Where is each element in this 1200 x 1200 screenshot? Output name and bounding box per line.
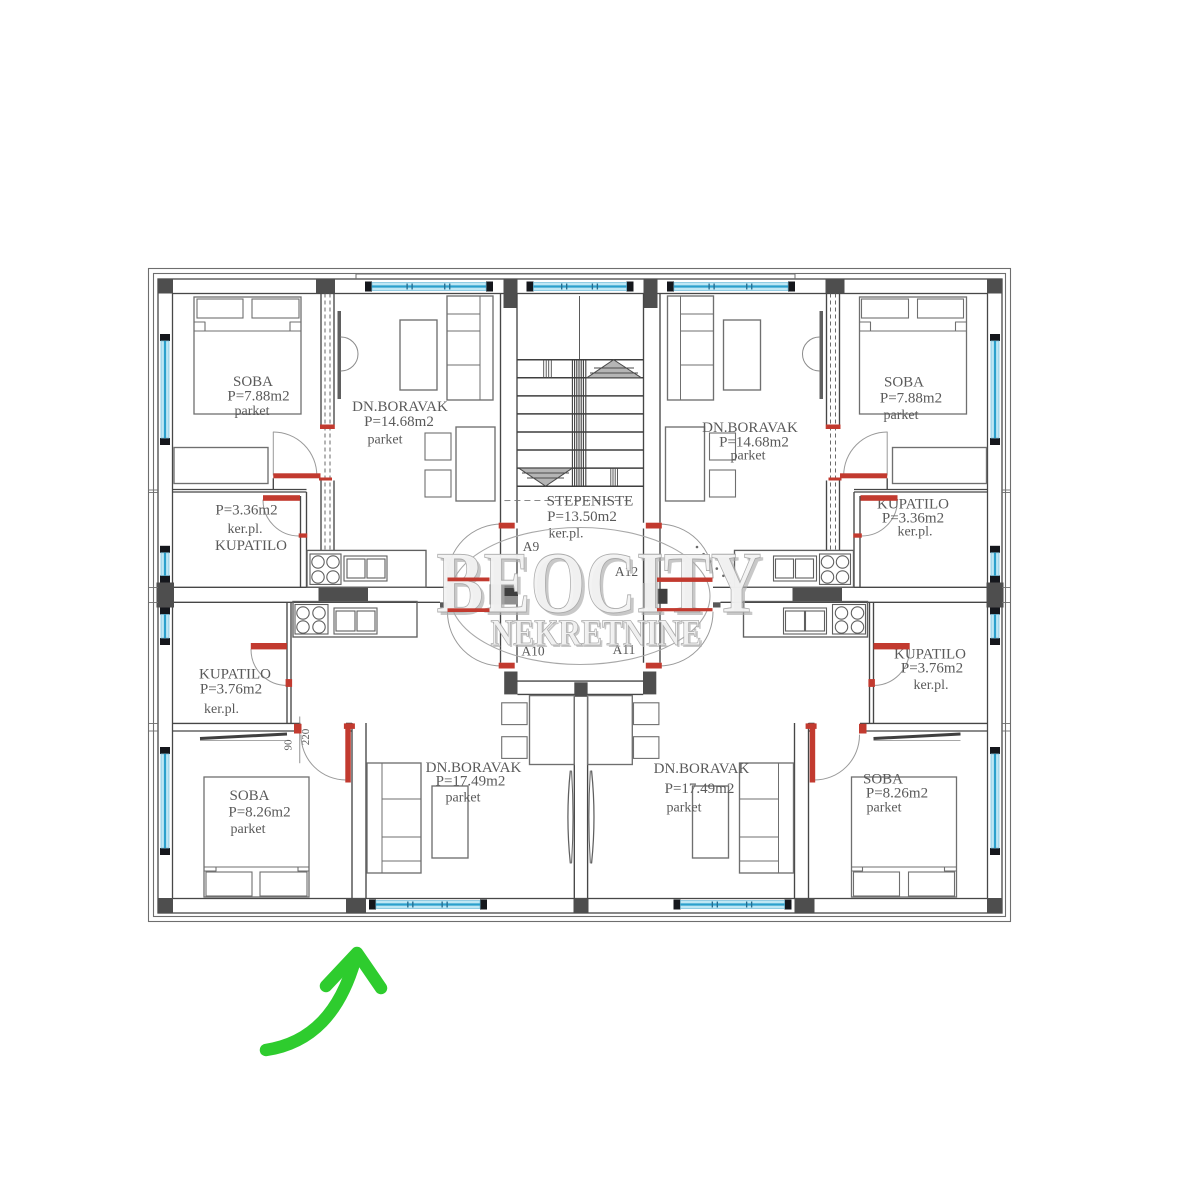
svg-text:parket: parket xyxy=(731,449,766,464)
svg-text:DN.BORAVAK: DN.BORAVAK xyxy=(654,761,750,777)
svg-text:P=3.76m2: P=3.76m2 xyxy=(200,682,262,698)
svg-text:parket: parket xyxy=(231,822,266,837)
svg-text:P=17.49m2: P=17.49m2 xyxy=(436,774,506,790)
svg-text:NEKRETNINE: NEKRETNINE xyxy=(491,613,702,654)
svg-text:parket: parket xyxy=(867,801,902,816)
svg-text:parket: parket xyxy=(368,433,403,448)
svg-text:KUPATILO: KUPATILO xyxy=(215,538,287,554)
svg-text:P=3.76m2: P=3.76m2 xyxy=(901,661,963,677)
svg-text:parket: parket xyxy=(235,404,270,419)
svg-text:ker.pl.: ker.pl. xyxy=(898,525,933,540)
svg-text:P=7.88m2: P=7.88m2 xyxy=(227,389,289,405)
svg-text:parket: parket xyxy=(884,408,919,423)
svg-text:parket: parket xyxy=(667,801,702,816)
svg-text:KUPATILO: KUPATILO xyxy=(199,667,271,683)
svg-text:P=13.50m2: P=13.50m2 xyxy=(547,509,617,525)
svg-text:P=17.49m2: P=17.49m2 xyxy=(665,781,735,797)
svg-text:ker.pl.: ker.pl. xyxy=(204,702,239,717)
svg-text:SOBA: SOBA xyxy=(884,375,924,391)
svg-text:ker.pl.: ker.pl. xyxy=(228,522,263,537)
svg-text:P=8.26m2: P=8.26m2 xyxy=(228,805,290,821)
svg-text:P=8.26m2: P=8.26m2 xyxy=(866,786,928,802)
svg-text:STEPENISTE: STEPENISTE xyxy=(547,494,634,510)
svg-text:parket: parket xyxy=(446,791,481,806)
svg-text:220: 220 xyxy=(300,728,312,745)
svg-text:P=7.88m2: P=7.88m2 xyxy=(880,391,942,407)
svg-text:ker.pl.: ker.pl. xyxy=(914,678,949,693)
svg-text:P=3.36m2: P=3.36m2 xyxy=(215,503,277,519)
svg-text:P=14.68m2: P=14.68m2 xyxy=(364,414,434,430)
svg-text:SOBA: SOBA xyxy=(229,788,269,804)
svg-text:DN.BORAVAK: DN.BORAVAK xyxy=(352,399,448,415)
